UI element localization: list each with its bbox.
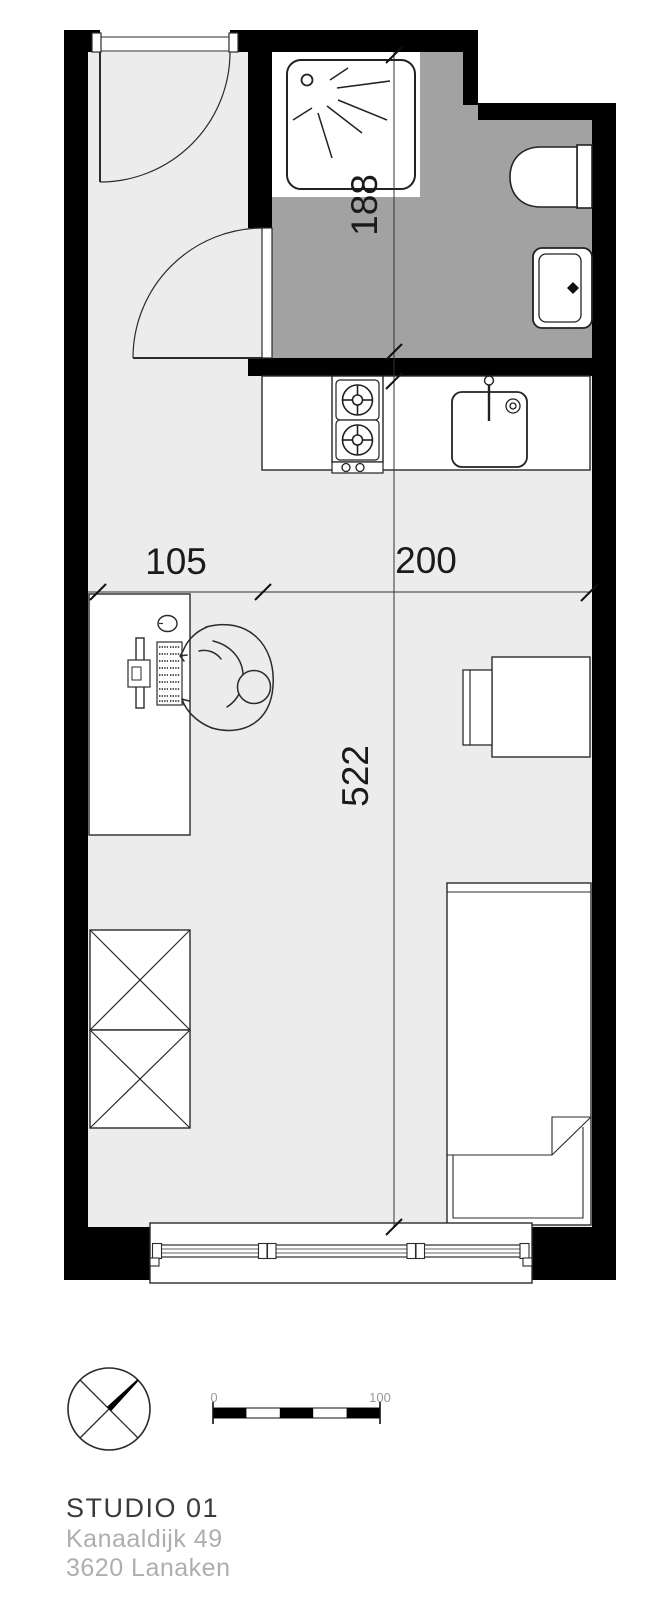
shower bbox=[287, 60, 415, 189]
bed-outline bbox=[447, 883, 591, 1225]
toilet-tank bbox=[577, 145, 592, 208]
plan-title: STUDIO 01 bbox=[66, 1493, 219, 1523]
scale-label-end: 100 bbox=[369, 1390, 391, 1405]
monitor-foot bbox=[132, 667, 141, 680]
floor-plan-drawing: 105 200 188 522 0 100 STUDIO 01 Kanaaldi… bbox=[0, 0, 647, 1600]
stove-knob-left bbox=[342, 464, 350, 472]
wall-bathroom-partition bbox=[248, 30, 272, 228]
kitchen-faucet-head bbox=[485, 376, 494, 385]
toilet bbox=[510, 145, 592, 208]
chair bbox=[463, 670, 492, 745]
mouse bbox=[158, 616, 177, 632]
toilet-bowl bbox=[510, 147, 577, 207]
stove-knob-right bbox=[356, 464, 364, 472]
dim-label-188: 188 bbox=[344, 174, 385, 236]
table-zone bbox=[463, 657, 590, 757]
bed bbox=[447, 883, 591, 1225]
bathroom-door-jamb bbox=[262, 228, 272, 358]
entrance-jamb-right bbox=[229, 33, 238, 52]
scale-label-start: 0 bbox=[210, 1390, 217, 1405]
wardrobe bbox=[90, 930, 190, 1128]
address-line-1: Kanaaldijk 49 bbox=[66, 1525, 223, 1553]
dim-label-200: 200 bbox=[395, 540, 457, 581]
wall-left bbox=[64, 30, 88, 1280]
dim-label-105: 105 bbox=[145, 541, 207, 582]
wall-right bbox=[592, 103, 616, 1280]
person-head bbox=[238, 671, 271, 704]
exterior-cutout bbox=[478, 0, 647, 103]
floor-plan-page: 105 200 188 522 0 100 STUDIO 01 Kanaaldi… bbox=[0, 0, 647, 1600]
dim-label-522: 522 bbox=[335, 745, 376, 807]
entrance-opening bbox=[100, 30, 230, 52]
north-arrow-icon bbox=[68, 1368, 150, 1450]
scale-bar: 0 100 bbox=[210, 1390, 390, 1424]
scale-bar-segment bbox=[280, 1408, 313, 1418]
keyboard bbox=[157, 642, 182, 705]
wall-kitchen-partition bbox=[248, 358, 592, 376]
desk bbox=[89, 594, 190, 835]
footer: STUDIO 01 Kanaaldijk 49 3620 Lanaken bbox=[66, 1493, 230, 1582]
entrance-jamb-left bbox=[92, 33, 101, 52]
north-arrow-pointer bbox=[107, 1379, 139, 1411]
table bbox=[492, 657, 590, 757]
wall-step-vertical bbox=[463, 30, 478, 105]
scale-bar-segment bbox=[347, 1408, 380, 1418]
stove bbox=[332, 376, 383, 473]
kitchen-counter bbox=[262, 376, 590, 470]
bathroom-sink bbox=[533, 248, 592, 328]
shower-drain-icon bbox=[302, 75, 313, 86]
window-glazing-band bbox=[155, 1245, 527, 1257]
window bbox=[150, 1223, 532, 1283]
kitchen bbox=[262, 376, 590, 473]
address-line-2: 3620 Lanaken bbox=[66, 1554, 230, 1582]
scale-bar-segment bbox=[213, 1408, 246, 1418]
